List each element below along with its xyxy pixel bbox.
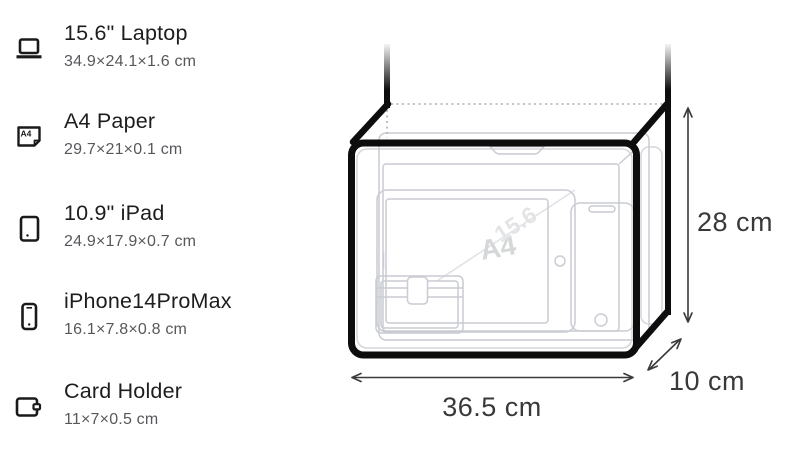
card-holder-clasp — [408, 277, 428, 304]
iphone-outline — [571, 203, 634, 331]
laptop-notch — [490, 147, 544, 155]
depth-dimension-label: 10 cm — [669, 366, 745, 396]
ipad-outline — [377, 190, 575, 332]
height-dimension-label: 28 cm — [697, 207, 773, 237]
bag-top-left-depth-edge — [353, 104, 388, 142]
bag-side-wall — [641, 147, 662, 324]
capacity-infographic: 15.6" Laptop 34.9×24.1×1.6 cm A4 A4 Pape… — [0, 0, 800, 455]
iphone-notch — [589, 206, 615, 212]
ipad-home-button — [555, 256, 565, 266]
bag-diagram: A4 15.6 28 cm 36 — [0, 0, 800, 455]
width-dimension-label: 36.5 cm — [442, 392, 542, 422]
depth-dimension-arrow — [649, 340, 680, 370]
bag-top-right-depth-edge — [634, 104, 667, 142]
iphone-camera-circle — [595, 314, 607, 326]
